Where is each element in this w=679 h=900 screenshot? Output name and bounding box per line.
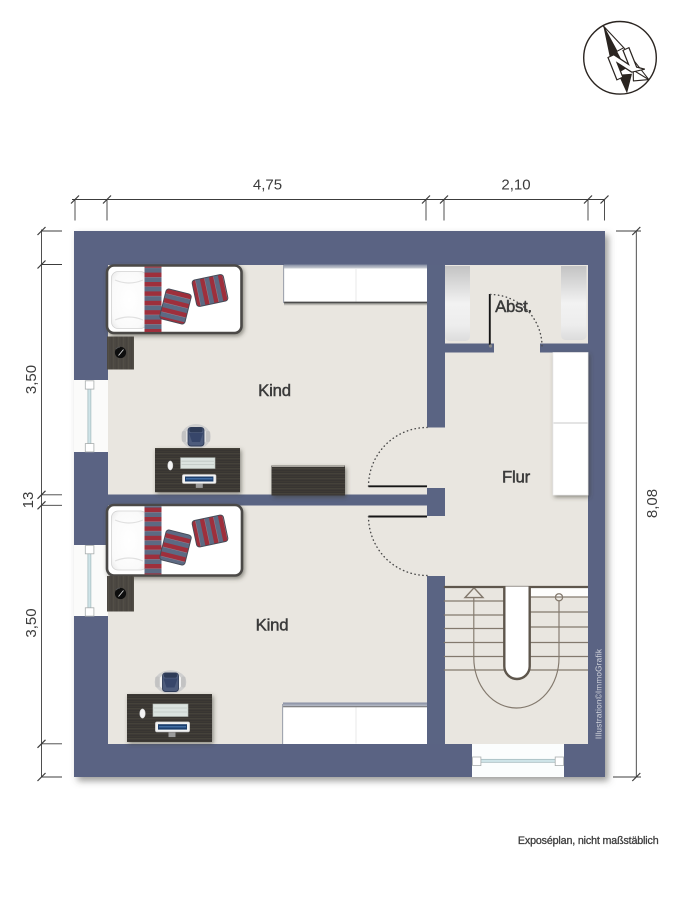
svg-text:13: 13 xyxy=(20,492,37,509)
svg-text:4,75: 4,75 xyxy=(253,176,282,193)
svg-text:Illustration©ImmoGrafik: Illustration©ImmoGrafik xyxy=(595,648,604,739)
svg-text:8,08: 8,08 xyxy=(644,489,661,518)
svg-text:Flur: Flur xyxy=(502,468,531,487)
svg-text:2,10: 2,10 xyxy=(501,176,530,193)
svg-text:Kind: Kind xyxy=(258,381,291,400)
svg-text:Exposéplan, nicht maßstäblich: Exposéplan, nicht maßstäblich xyxy=(518,835,659,847)
svg-text:3,50: 3,50 xyxy=(23,365,40,394)
svg-text:Kind: Kind xyxy=(256,616,289,635)
svg-text:3,50: 3,50 xyxy=(23,608,40,637)
svg-text:Abst.: Abst. xyxy=(495,297,532,316)
